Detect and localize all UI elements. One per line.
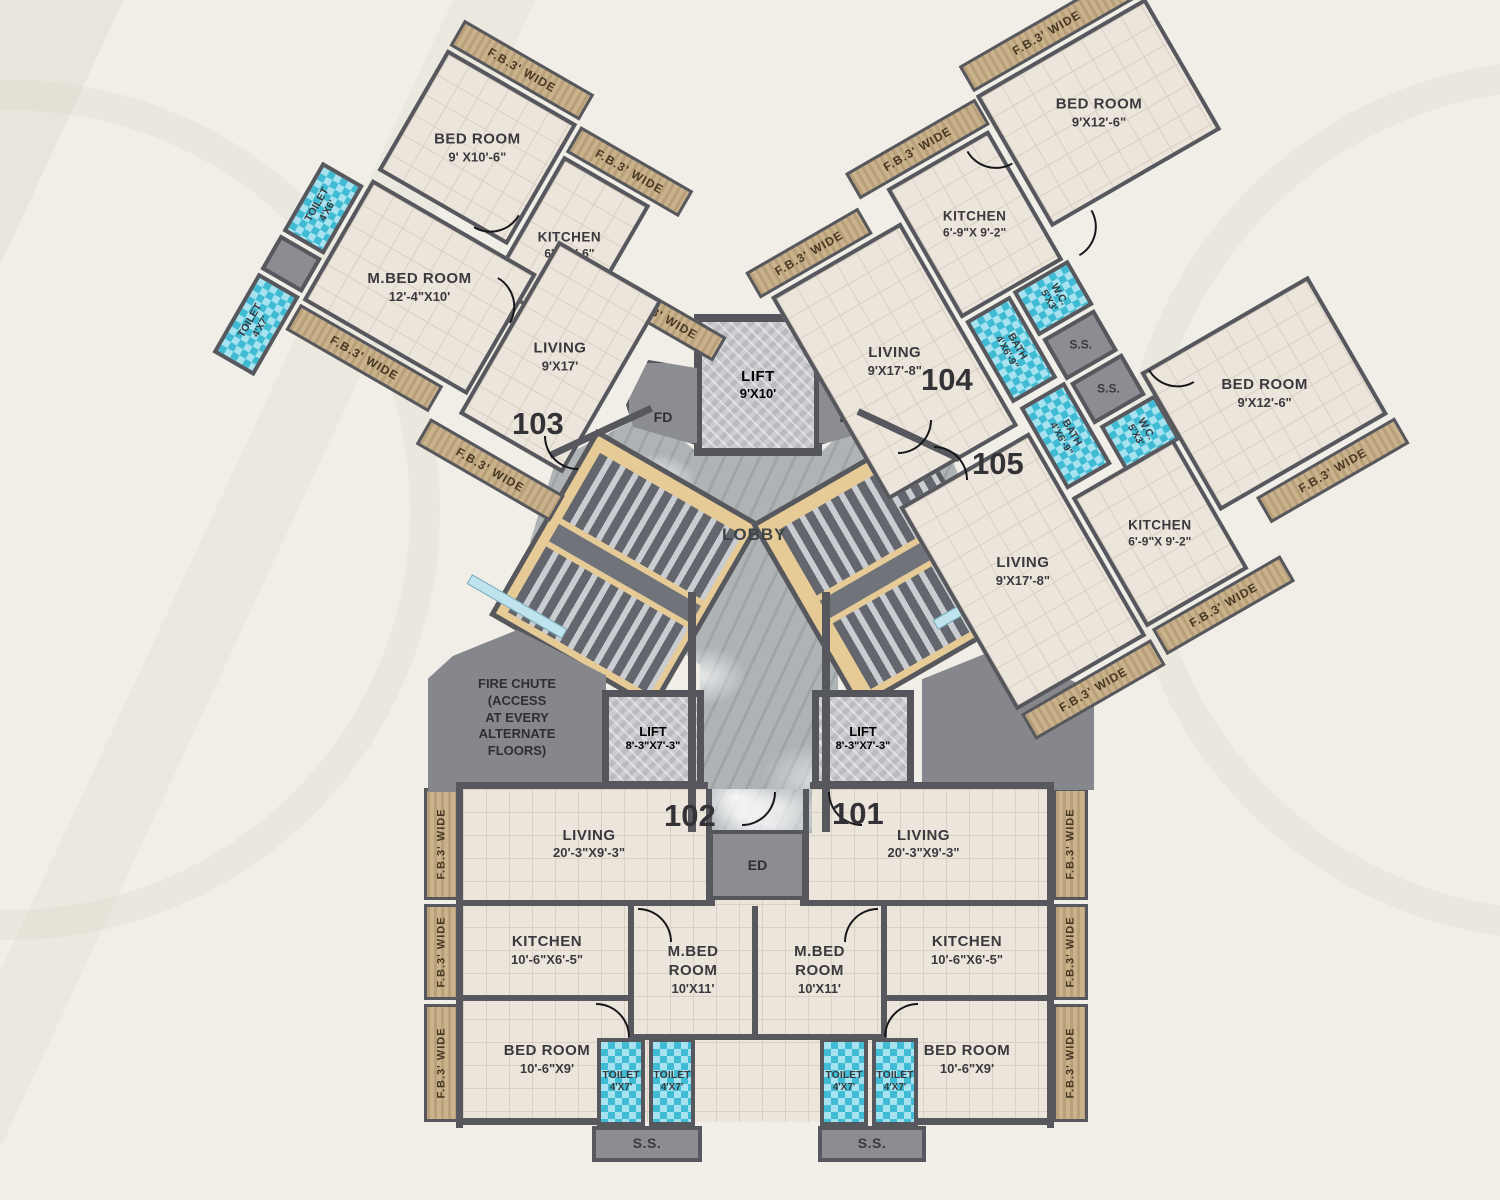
- room-kitchen-102: KITCHEN10'-6"X6'-5": [466, 906, 628, 995]
- floor-plan-canvas: LOBBY FIRE CHUTE (ACCESS AT EVERY ALTERN…: [0, 0, 1500, 1200]
- lift-main-label: LIFT 9'X10': [740, 368, 777, 403]
- balcony-strip: F.B.3' WIDE: [1053, 788, 1088, 900]
- balcony-strip: F.B.3' WIDE: [424, 1004, 459, 1122]
- unit-number-104: 104: [921, 362, 973, 398]
- wall: [800, 900, 1047, 906]
- wall: [463, 995, 631, 1001]
- room-toilet-102-a: TOILET4'X7': [597, 1038, 645, 1126]
- wall: [803, 789, 809, 901]
- balcony-strip: F.B.3' WIDE: [1053, 1004, 1088, 1122]
- room-toilet-102-b: TOILET4'X7': [649, 1038, 695, 1126]
- balcony-strip: F.B.3' WIDE: [424, 788, 459, 900]
- wall: [884, 995, 1047, 1001]
- room-ss-102: S.S.: [592, 1126, 702, 1162]
- room-ss-101: S.S.: [818, 1126, 926, 1162]
- room-toilet-103-b: TOILET4'X7': [212, 273, 300, 377]
- room-toilet-101-a: TOILET4'X7': [820, 1038, 868, 1126]
- unit-number-105: 105: [972, 446, 1024, 482]
- wall: [810, 782, 1054, 789]
- balcony-strip: F.B.3' WIDE: [424, 904, 459, 1000]
- wall: [752, 906, 758, 1038]
- wall: [1047, 782, 1054, 1128]
- room-toilet-101-b: TOILET4'X7': [872, 1038, 918, 1126]
- lift-left-label: LIFT 8'-3"X7'-3": [626, 724, 681, 754]
- unit-number-103: 103: [512, 406, 564, 442]
- ed-label: ED: [748, 857, 767, 873]
- fd-label: FD: [654, 409, 673, 425]
- unit-number-102: 102: [664, 798, 716, 834]
- wall: [463, 900, 715, 906]
- fire-chute-label: FIRE CHUTE (ACCESS AT EVERY ALTERNATE FL…: [478, 676, 556, 760]
- ed-room: ED: [709, 830, 806, 900]
- balcony-strip: F.B.3' WIDE: [1053, 904, 1088, 1000]
- lift-right-label: LIFT 8'-3"X7'-3": [836, 724, 891, 754]
- lobby-label: LOBBY: [722, 525, 787, 545]
- room-kitchen-101: KITCHEN10'-6"X6'-5": [887, 906, 1047, 995]
- wall: [456, 782, 463, 1128]
- unit-number-101: 101: [832, 796, 884, 832]
- wall: [456, 782, 708, 789]
